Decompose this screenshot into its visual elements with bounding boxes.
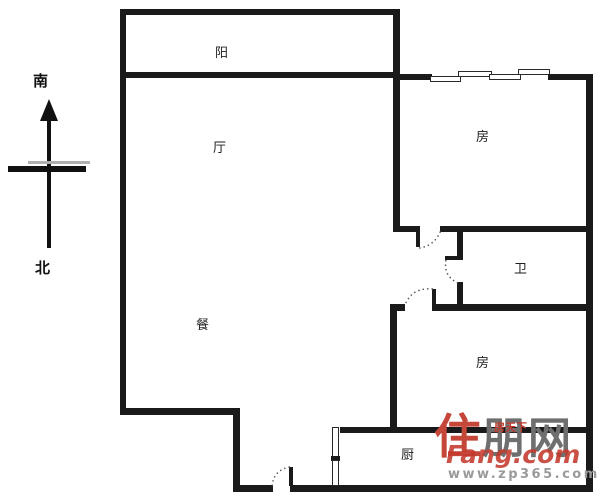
wall-bathroom-west-upper [457,232,463,258]
watermark-url: www.zp365.com [448,468,600,481]
bedroom1-door-arc [417,229,443,250]
bathroom-door-arc [441,258,461,285]
window-kitchen-upper-pane [332,427,339,458]
room-label-dining: 餐 [196,319,209,332]
wall-bedroom1-top-left [398,74,432,80]
wall-left [120,9,126,415]
entry-door-arc [269,463,292,489]
floor-plan: 阳 厅 餐 房 卫 房 厨 南 北 住 朋网 房天下 Fang.com www.… [0,0,600,497]
room-label-bedroom1: 房 [476,131,489,144]
wall-dining-step-right [233,408,240,492]
compass-needle [47,116,51,248]
room-label-living: 厅 [213,142,226,155]
room-label-bathroom: 卫 [514,263,527,276]
compass-north-label: 北 [35,261,50,276]
wall-dining-step-bottom [120,408,240,415]
window-bedroom1-pane [518,69,550,75]
window-bedroom1-pane [489,74,521,80]
wall-bedroom2-top-right [432,304,593,311]
wall-balcony-bottom [120,72,398,78]
watermark-small-text: 房天下 [494,422,527,433]
window-kitchen-lower-pane [332,460,339,486]
bedroom2-door-arc [402,285,435,307]
wall-balcony-right [393,9,400,230]
window-bedroom1-pane [458,71,492,77]
wall-balcony-top [120,9,400,15]
watermark: 住 朋网 房天下 Fang.com www.zp365.com [428,410,600,497]
room-label-balcony: 阳 [215,47,228,60]
compass-south-label: 南 [33,74,48,89]
wall-bottom-left [233,485,273,492]
compass-crossbar [8,166,86,172]
window-bedroom1-pane [430,76,461,82]
room-label-bedroom2: 房 [476,357,489,370]
compass-crossbar-shadow [28,161,90,164]
watermark-script-text: Fang.com [446,442,580,467]
room-label-kitchen: 厨 [401,449,414,462]
wall-dining-bedroom2 [390,304,397,433]
